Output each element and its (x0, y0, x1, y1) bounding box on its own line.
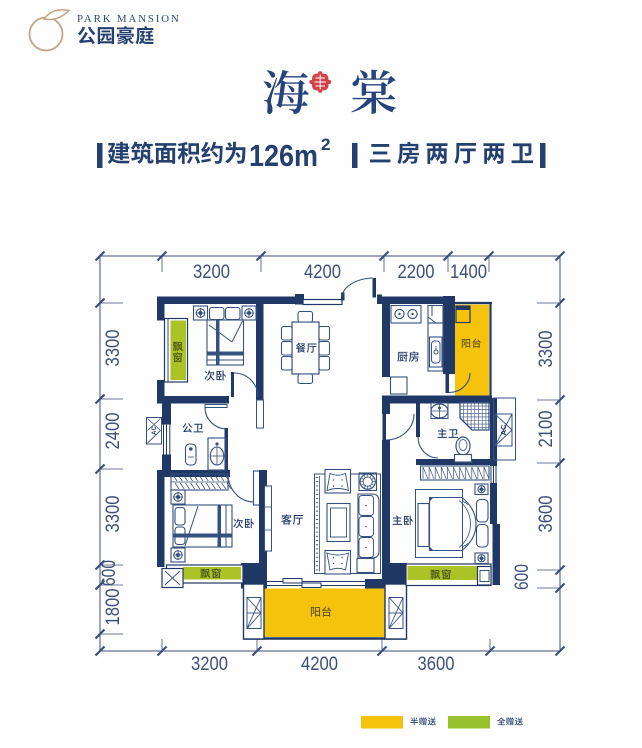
svg-text:2: 2 (321, 135, 330, 154)
svg-text:4200: 4200 (301, 654, 338, 675)
svg-text:126m: 126m (249, 139, 318, 173)
svg-text:2200: 2200 (398, 262, 435, 283)
svg-text:1400: 1400 (450, 262, 487, 283)
svg-text:3300: 3300 (536, 331, 557, 368)
svg-text:3200: 3200 (193, 262, 230, 283)
svg-text:3600: 3600 (536, 496, 557, 533)
svg-text:3600: 3600 (418, 654, 455, 675)
svg-text:2400: 2400 (103, 413, 124, 450)
svg-text:600: 600 (99, 560, 120, 586)
svg-text:3300: 3300 (103, 330, 124, 367)
svg-text:3200: 3200 (191, 654, 228, 675)
svg-text:2100: 2100 (536, 411, 557, 448)
svg-text:PARK MANSION: PARK MANSION (77, 13, 181, 25)
svg-text:AC: AC (152, 426, 158, 435)
svg-text:1800: 1800 (103, 589, 124, 626)
svg-text:600: 600 (512, 564, 533, 590)
svg-text:3300: 3300 (103, 496, 124, 533)
svg-text:4200: 4200 (304, 262, 341, 283)
svg-text:AC: AC (499, 424, 508, 435)
